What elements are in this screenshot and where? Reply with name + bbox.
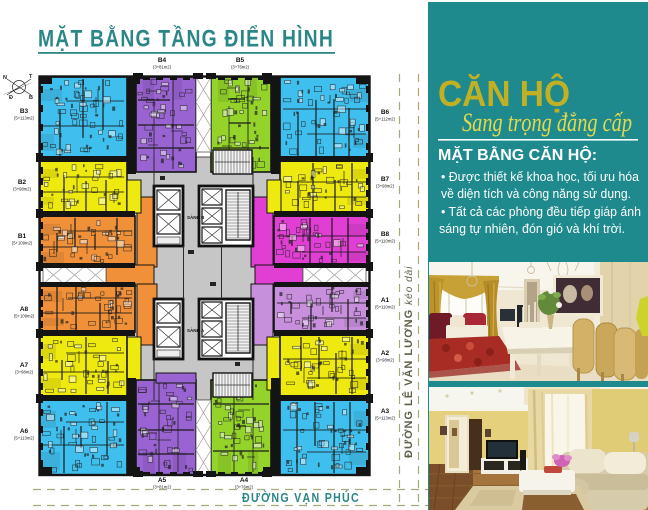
svg-text:(5+113m2): (5+113m2) [14, 436, 35, 441]
svg-text:• Được thiết kế khoa học, tối: • Được thiết kế khoa học, tối ưu hóa [441, 169, 640, 184]
svg-text:A1: A1 [381, 297, 390, 304]
svg-text:(3+81m2): (3+81m2) [153, 485, 172, 490]
svg-text:A3: A3 [381, 408, 390, 415]
svg-text:(5+113m2): (5+113m2) [375, 416, 396, 421]
svg-text:B1: B1 [18, 233, 27, 240]
svg-text:(5+113m2): (5+113m2) [14, 116, 35, 121]
svg-text:sáng tự nhiên, đón gió và khí: sáng tự nhiên, đón gió và khí trời. [439, 221, 625, 236]
svg-text:(3+76m2): (3+76m2) [235, 485, 254, 490]
svg-text:MẶT BẰNG TẦNG ĐIỂN HÌNH: MẶT BẰNG TẦNG ĐIỂN HÌNH [38, 25, 334, 53]
svg-text:Đ: Đ [9, 95, 13, 101]
svg-text:(3+76m2): (3+76m2) [231, 65, 250, 70]
svg-text:N: N [3, 75, 7, 81]
svg-text:(3+81m2): (3+81m2) [153, 65, 172, 70]
svg-text:(5+112m2): (5+112m2) [375, 117, 396, 122]
svg-text:Sang trọng đẳng cấp: Sang trọng đẳng cấp [462, 108, 632, 137]
svg-text:SẢNH B: SẢNH B [187, 214, 205, 220]
svg-text:(5+110m2): (5+110m2) [375, 239, 396, 244]
svg-text:B8: B8 [381, 231, 390, 238]
svg-text:MẶT BẰNG CĂN HỘ:: MẶT BẰNG CĂN HỘ: [438, 145, 597, 164]
svg-text:A8: A8 [20, 306, 29, 313]
svg-text:B3: B3 [20, 108, 29, 115]
svg-text:A2: A2 [381, 350, 390, 357]
svg-text:B5: B5 [236, 57, 245, 64]
svg-text:A5: A5 [158, 477, 167, 484]
svg-text:về diện tích và công năng sử d: về diện tích và công năng sử dụng. [441, 186, 631, 201]
svg-text:ĐƯỜNG LÊ VĂN LƯƠNG kéo dài: ĐƯỜNG LÊ VĂN LƯƠNG kéo dài [402, 266, 415, 458]
svg-text:B6: B6 [381, 109, 390, 116]
svg-text:(3+98m2): (3+98m2) [376, 358, 395, 363]
svg-text:B7: B7 [381, 176, 390, 183]
svg-text:A6: A6 [20, 428, 29, 435]
svg-text:SẢNH A: SẢNH A [187, 327, 205, 333]
svg-text:ĐƯỜNG VẠN PHÚC: ĐƯỜNG VẠN PHÚC [242, 490, 360, 505]
svg-text:A7: A7 [20, 362, 29, 369]
svg-text:• Tất cả các phòng đều tiếp gi: • Tất cả các phòng đều tiếp giáp ánh [441, 204, 641, 219]
svg-text:(3+98m2): (3+98m2) [13, 187, 32, 192]
svg-text:A4: A4 [240, 477, 249, 484]
svg-text:(5+109m2): (5+109m2) [12, 241, 33, 246]
svg-text:B: B [29, 95, 33, 101]
svg-text:(3+98m2): (3+98m2) [376, 184, 395, 189]
svg-text:(5+110m2): (5+110m2) [375, 305, 396, 310]
svg-text:(3+98m2): (3+98m2) [15, 370, 34, 375]
svg-text:B2: B2 [18, 179, 27, 186]
svg-text:B4: B4 [158, 57, 167, 64]
svg-text:(5+109m2): (5+109m2) [14, 314, 35, 319]
